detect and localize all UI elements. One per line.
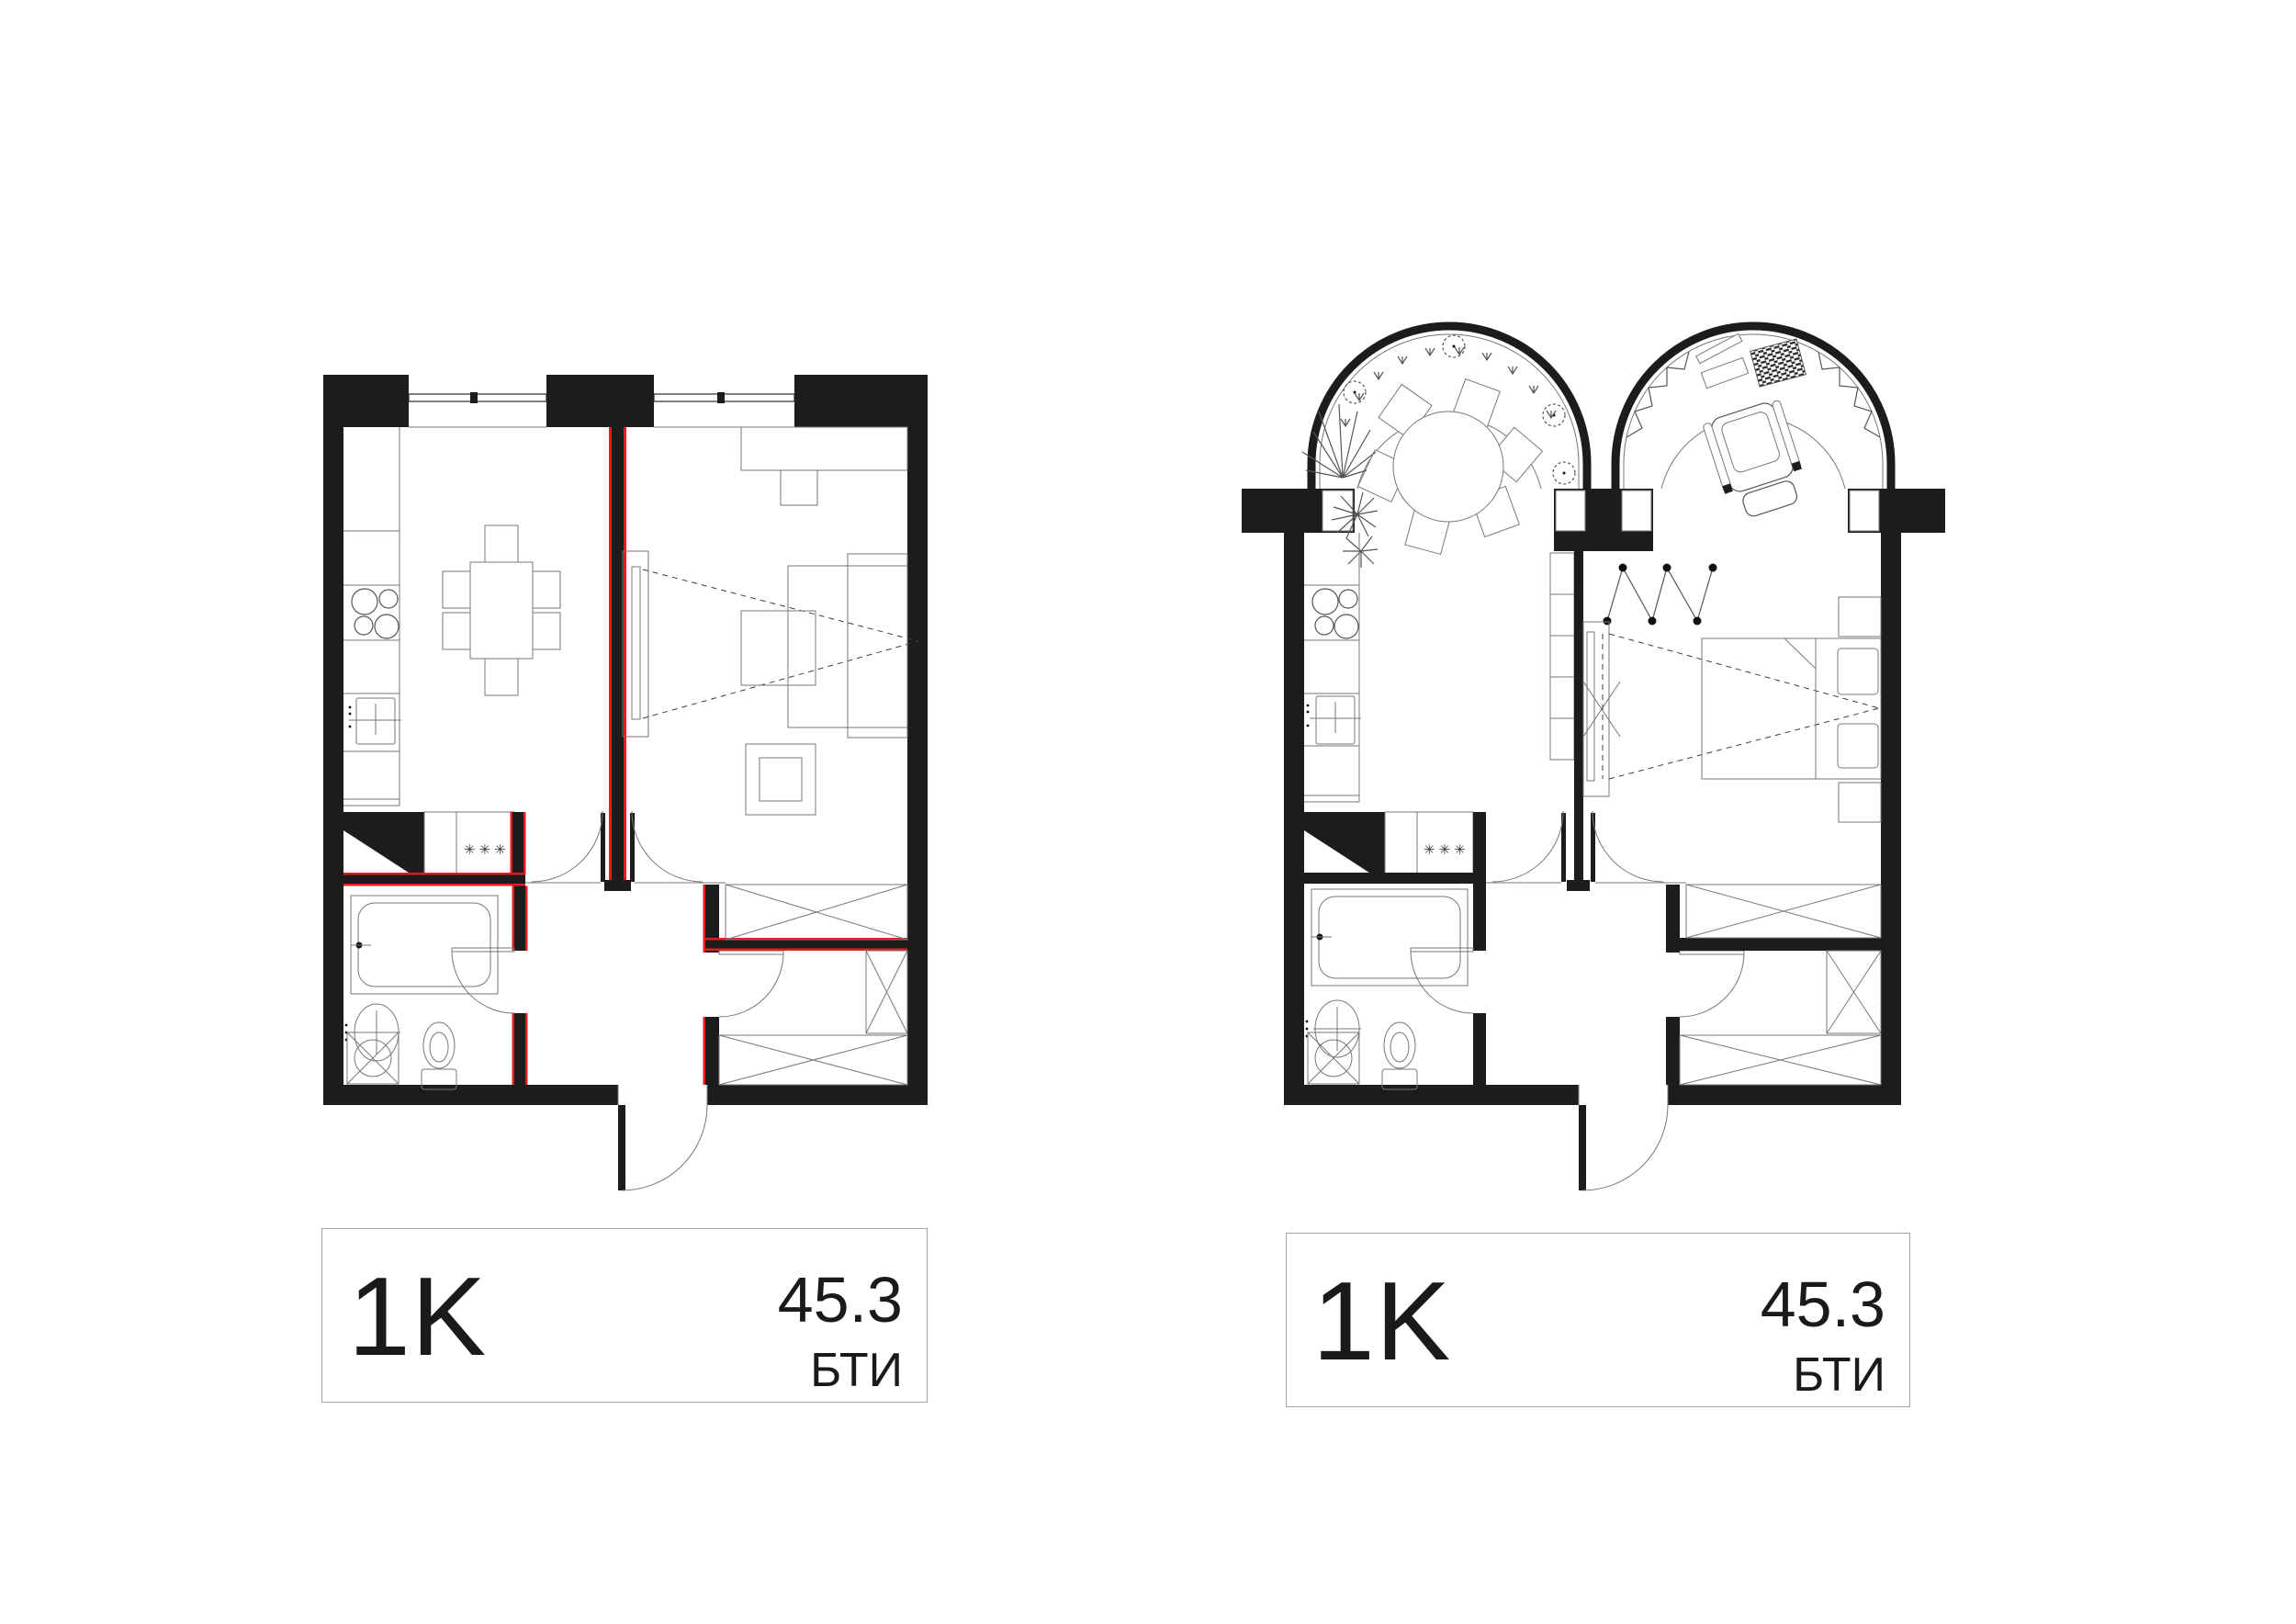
wall-shelf [741,427,907,505]
area-value: 45.3 [778,1268,903,1332]
washbasin-icon [1306,1000,1361,1057]
balcony-dining [1358,378,1543,554]
pillow [1838,724,1878,768]
area-agency-label: БТИ [778,1347,903,1394]
hall-wardrobe [1666,885,1881,1085]
plan-type-label: 1K [1312,1265,1451,1377]
plan-type-label: 1K [348,1260,487,1372]
kitchen-sink-icon [349,698,401,744]
bench [1701,357,1748,388]
hall-wardrobe [703,885,908,1085]
label-card-right: 1K 45.3 БТИ [1286,1233,1910,1407]
wardrobe-xbox [1680,1035,1881,1085]
bed [1702,597,1881,822]
wardrobe-xbox [866,951,907,1033]
bathroom [1306,884,1486,1089]
coat-rack-zigzag [1604,564,1717,626]
tv-unit [1583,622,1620,796]
dining-chair [533,613,560,649]
sofa [788,554,907,738]
dining-chair [485,525,518,562]
bathtub [1311,889,1468,986]
dining-table [443,525,560,695]
floor-plan-right: ✳✳✳ [1242,326,1945,1190]
pillow [1838,648,1878,694]
entrance-door-arc [618,1085,707,1190]
armchair [1702,398,1811,523]
area-value: 45.3 [1761,1272,1885,1336]
dining-chair [443,571,470,608]
wardrobe-xbox [1827,951,1881,1033]
tall-cabinets [1550,553,1574,760]
living-room-furniture [623,427,918,815]
nightstand [1839,783,1881,822]
wardrobe-xbox [1686,885,1881,938]
toilet-icon [1382,1022,1417,1089]
floor-plan-left: ✳✳✳ [323,375,928,1190]
dressing-door-arc [719,951,783,1017]
coffee-table [741,611,816,685]
kitchen-hob-icon [352,589,399,638]
bathroom [345,886,528,1090]
round-table [1393,412,1503,522]
partition-wall [1567,551,1590,891]
tv-view-dashed [643,570,918,718]
toilet-icon [422,1022,456,1089]
dining-chair [533,571,560,608]
side-table [746,744,816,815]
doormat [1750,339,1806,387]
dining-chair [485,659,518,695]
laundry-stars: ✳✳✳ [1424,842,1469,858]
page: ✳✳✳ [0,0,2296,1624]
partition-wall-red [604,427,631,891]
wardrobe-xbox [719,1035,907,1085]
kitchen-hob-icon [1312,589,1358,638]
nightstand [1839,597,1881,637]
washing-machine-icon [347,1032,399,1084]
wardrobe-xbox [726,885,907,940]
kitchen-counter [1304,533,1574,802]
bathroom-door-arc [452,948,514,1013]
bathroom-door-arc [1411,948,1473,1013]
laundry-nook: ✳✳✳ [343,812,526,886]
tv-unit [623,551,648,737]
laundry-nook: ✳✳✳ [1304,812,1486,884]
area-agency-label: БТИ [1761,1351,1885,1399]
blanket-fold [1784,638,1816,669]
bedroom-furniture [1583,597,1881,822]
dressing-door-arc [1680,951,1744,1017]
washing-machine-icon [1308,1032,1359,1084]
dining-chair [443,613,470,649]
kitchen-sink-icon [1307,696,1361,744]
interior-door-arc [1486,811,1686,883]
bathtub [351,896,498,994]
kitchen-counter [343,427,401,806]
entrance-door-arc [1579,1085,1668,1190]
laundry-stars: ✳✳✳ [464,842,510,858]
label-card-left: 1K 45.3 БТИ [321,1228,928,1403]
